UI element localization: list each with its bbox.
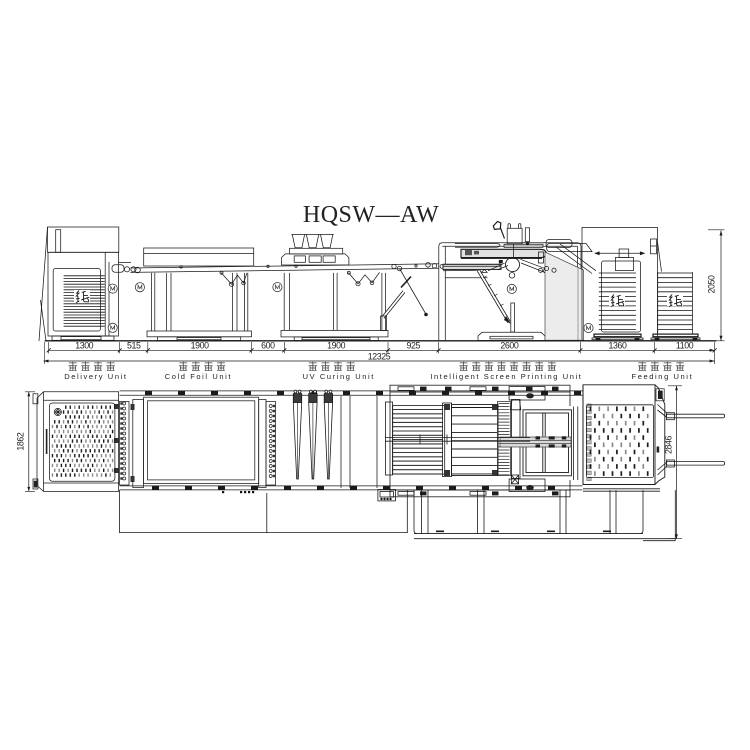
svg-text:Intelligent Screen Printing Un: Intelligent Screen Printing Unit: [430, 372, 582, 381]
svg-text:925: 925: [406, 341, 420, 351]
svg-text:2050: 2050: [707, 275, 717, 293]
svg-text:Delivery Unit: Delivery Unit: [64, 372, 127, 381]
svg-text:Feeding Unit: Feeding Unit: [632, 372, 694, 381]
svg-text:1862: 1862: [16, 432, 26, 450]
svg-text:12325: 12325: [368, 351, 391, 361]
svg-text:HQSW—AW: HQSW—AW: [303, 202, 439, 228]
svg-text:515: 515: [127, 341, 141, 351]
svg-text:1360: 1360: [609, 341, 627, 351]
svg-text:600: 600: [261, 341, 275, 351]
svg-text:UV Curing Unit: UV Curing Unit: [303, 372, 375, 381]
svg-text:1900: 1900: [191, 341, 209, 351]
svg-text:Cold Foil Unit: Cold Foil Unit: [165, 372, 232, 381]
svg-text:1900: 1900: [327, 341, 345, 351]
svg-text:2600: 2600: [500, 341, 518, 351]
svg-text:2846: 2846: [664, 436, 674, 454]
svg-text:1300: 1300: [75, 341, 93, 351]
svg-text:1100: 1100: [676, 341, 694, 351]
